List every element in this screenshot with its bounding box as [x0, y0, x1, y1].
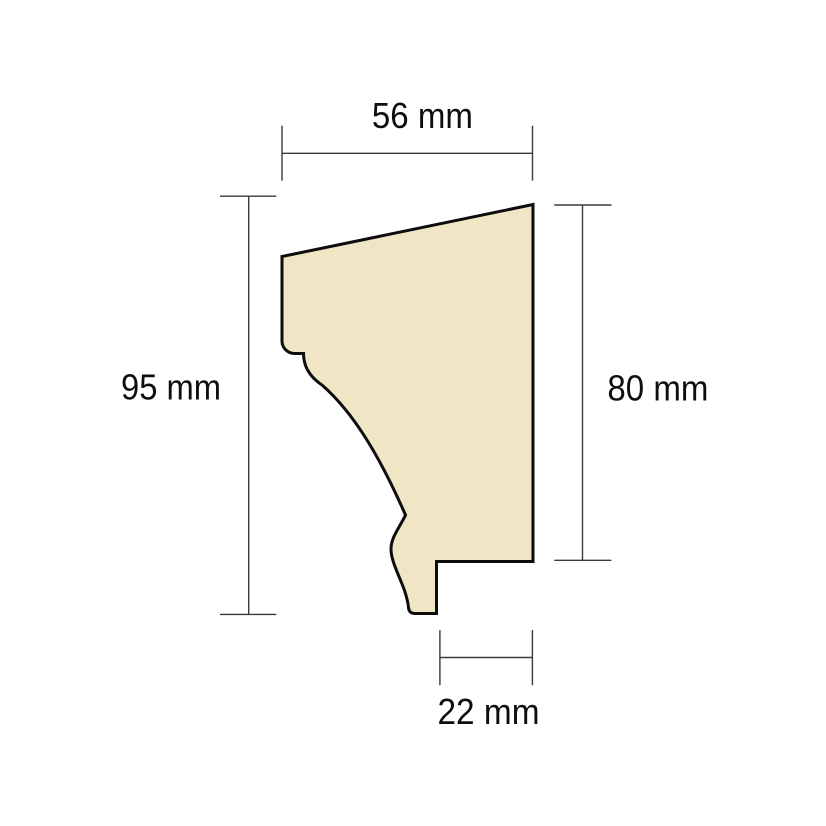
svg-text:95 mm: 95 mm	[121, 367, 221, 408]
svg-text:56 mm: 56 mm	[372, 95, 473, 136]
svg-text:80 mm: 80 mm	[607, 368, 708, 409]
svg-text:22 mm: 22 mm	[438, 691, 540, 732]
